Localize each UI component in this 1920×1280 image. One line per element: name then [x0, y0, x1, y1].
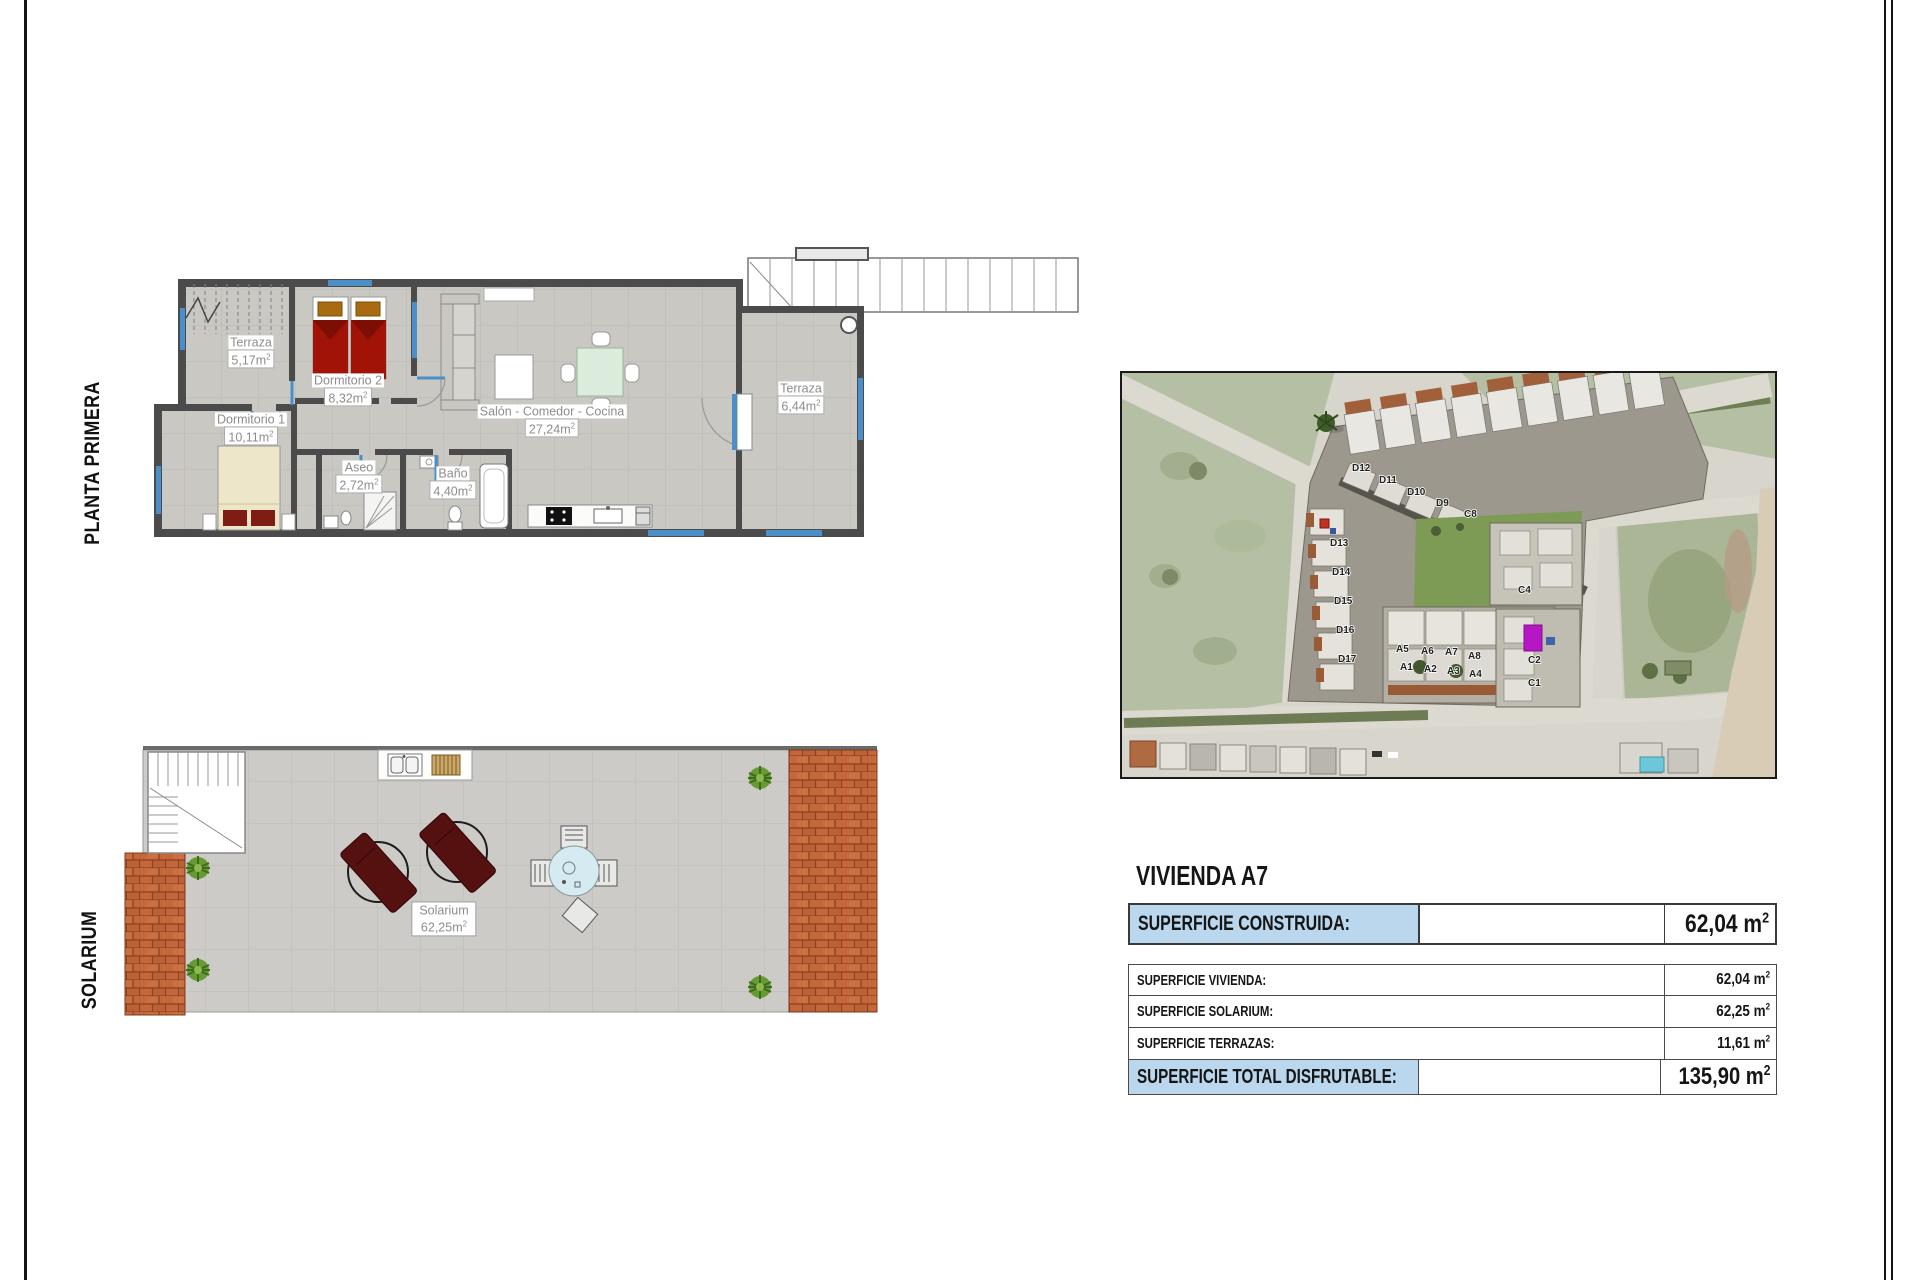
room-label-salon: Salón - Comedor - Cocina 27,24m2 — [478, 404, 627, 437]
superficie-vivienda-value: 62,04 m2 — [1665, 965, 1776, 995]
sideboard — [484, 288, 534, 301]
map-dirt-patch — [1724, 529, 1752, 613]
room-label-aseo: Aseo 2,72m2 — [335, 460, 382, 493]
site-aerial-map: D12 D11 D10 D9 C8 D13 D14 D15 D16 D17 C4… — [1120, 371, 1777, 779]
map-unit-label: D10 — [1407, 487, 1426, 498]
superficie-total-value: 135,90 m2 — [1661, 1060, 1776, 1094]
sofa — [441, 294, 479, 410]
table-row: SUPERFICIE VIVIENDA: 62,04 m2 — [1129, 965, 1776, 995]
map-unit-label: D13 — [1330, 538, 1349, 549]
solarium-floorplan — [120, 740, 890, 1030]
roof-tiles-right — [789, 750, 877, 1012]
map-unit-label: A1 — [1400, 662, 1413, 673]
map-unit-label: D17 — [1338, 654, 1357, 665]
room-label-terraza-2: Terraza 6,44m2 — [777, 381, 824, 414]
superficie-construida-table: SUPERFICIE CONSTRUIDA: 62,04 m2 — [1128, 903, 1777, 945]
outdoor-kitchenette — [378, 750, 472, 780]
room-label-bano: Baño 4,40m2 — [429, 466, 476, 499]
header-spacer-cell — [1420, 905, 1665, 943]
map-unit-label: D16 — [1336, 625, 1355, 636]
superficie-terrazas-value: 11,61 m2 — [1665, 1028, 1776, 1059]
terrace-column — [841, 317, 857, 333]
planta-primera-floorplan — [148, 218, 1088, 568]
map-unit-label: C2 — [1528, 655, 1541, 666]
details-title: VIVIENDA A7 — [1136, 860, 1310, 892]
superficie-construida-value: 62,04 m2 — [1665, 905, 1775, 943]
superficie-construida-label-cell: SUPERFICIE CONSTRUIDA: — [1130, 905, 1420, 943]
plan-sheet: PLANTA PRIMERA SOLARIUM — [0, 0, 1920, 1280]
room-label-terraza-1: Terraza 5,17m2 — [227, 335, 274, 368]
top-wall — [143, 746, 877, 750]
map-unit-label: D11 — [1379, 475, 1397, 486]
map-unit-label: D15 — [1334, 596, 1353, 607]
map-unit-label: D14 — [1332, 567, 1351, 578]
superficie-solarium-value: 62,25 m2 — [1665, 996, 1776, 1027]
map-unit-label: A3 — [1447, 666, 1460, 677]
map-unit-label: A6 — [1421, 646, 1434, 657]
map-unit-label: C1 — [1528, 678, 1541, 689]
map-highlighted-unit — [1524, 625, 1542, 651]
sheet-frame-right-outer — [1884, 0, 1886, 1280]
solarium-stairs — [148, 752, 245, 853]
map-unit-label: A7 — [1445, 647, 1458, 658]
map-unit-label: A4 — [1469, 669, 1482, 680]
map-unit-label: A5 — [1396, 644, 1409, 655]
roof-tiles-left — [125, 853, 185, 1015]
external-stairs — [748, 248, 1078, 312]
superficie-terrazas-label: SUPERFICIE TERRAZAS: — [1129, 1028, 1665, 1059]
room-label-dormitorio-1: Dormitorio 1 10,11m2 — [215, 412, 287, 445]
sheet-frame-right-inner — [1891, 0, 1893, 1280]
map-unit-label: A8 — [1468, 651, 1481, 662]
table-row: SUPERFICIE TERRAZAS: 11,61 m2 — [1129, 1027, 1776, 1059]
side-label-solarium: SOLARIUM — [78, 911, 102, 1010]
coffee-table — [495, 355, 533, 399]
table-row: SUPERFICIE SOLARIUM: 62,25 m2 — [1129, 995, 1776, 1027]
table-row-total: SUPERFICIE TOTAL DISFRUTABLE: 135,90 m2 — [1129, 1059, 1776, 1094]
superficie-total-label-cell: SUPERFICIE TOTAL DISFRUTABLE: — [1129, 1060, 1661, 1094]
map-unit-label: D9 — [1436, 498, 1449, 509]
side-label-planta-primera: PLANTA PRIMERA — [81, 381, 105, 545]
kitchen-counter — [528, 505, 652, 527]
map-unit-label: C8 — [1464, 509, 1477, 520]
superficies-table: SUPERFICIE VIVIENDA: 62,04 m2 SUPERFICIE… — [1128, 964, 1777, 1095]
room-label-solarium: Solarium 62,25m2 — [411, 901, 476, 936]
sheet-frame-left — [24, 0, 27, 1280]
map-unit-label: A2 — [1424, 664, 1437, 675]
room-label-dormitorio-2: Dormitorio 2 8,32m2 — [312, 373, 384, 406]
superficie-vivienda-label: SUPERFICIE VIVIENDA: — [1129, 965, 1665, 995]
map-unit-label: D12 — [1352, 463, 1371, 474]
map-unit-label: C4 — [1518, 585, 1531, 596]
superficie-solarium-label: SUPERFICIE SOLARIUM: — [1129, 996, 1665, 1027]
